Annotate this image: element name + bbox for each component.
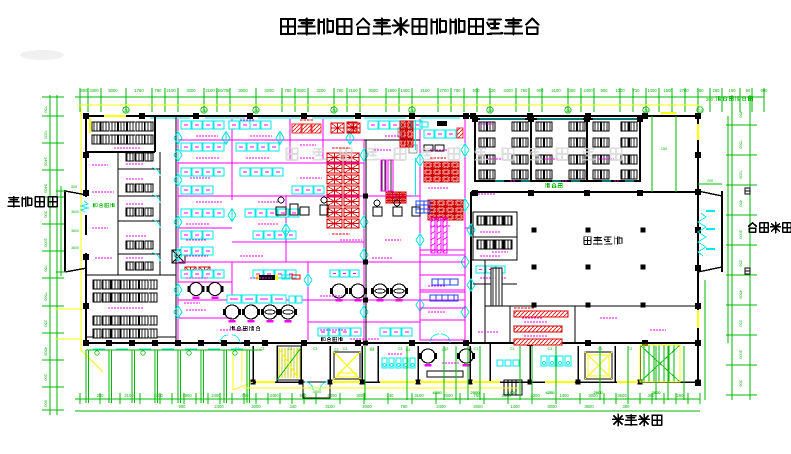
svg-text:4500: 4500: [44, 347, 49, 357]
svg-text:C5: C5: [698, 109, 703, 113]
svg-text:320: 320: [489, 88, 497, 93]
svg-text:200: 200: [706, 97, 714, 102]
svg-text:900: 900: [761, 88, 769, 93]
svg-text:2400: 2400: [327, 393, 337, 398]
svg-text:450: 450: [739, 111, 744, 118]
svg-text:C5: C5: [566, 109, 571, 113]
svg-text:C3: C3: [474, 347, 479, 351]
svg-text:C3: C3: [548, 347, 553, 351]
svg-text:250: 250: [739, 260, 744, 267]
svg-text:C5: C5: [254, 109, 259, 113]
svg-text:2700: 2700: [679, 88, 689, 93]
svg-text:90: 90: [746, 88, 751, 93]
svg-text:380: 380: [623, 404, 631, 409]
svg-text:850: 850: [81, 88, 89, 93]
svg-text:3600: 3600: [71, 229, 79, 233]
svg-text:1400: 1400: [400, 88, 410, 93]
svg-text:760: 760: [337, 88, 345, 93]
svg-text:2100: 2100: [124, 393, 134, 398]
svg-text:2600: 2600: [594, 390, 604, 395]
svg-text:2700: 2700: [439, 88, 449, 93]
svg-text:4500: 4500: [313, 390, 321, 394]
svg-text:250: 250: [739, 320, 744, 327]
svg-text:3400: 3400: [503, 88, 513, 93]
svg-text:900: 900: [537, 88, 545, 93]
svg-text:2400: 2400: [436, 404, 446, 409]
svg-text:3600: 3600: [71, 210, 79, 214]
svg-text:1760: 1760: [134, 88, 144, 93]
svg-text:900: 900: [179, 404, 187, 409]
svg-text:7200: 7200: [739, 170, 744, 180]
svg-text:2100: 2100: [166, 88, 176, 93]
svg-text:4200: 4200: [546, 390, 556, 395]
svg-text:750: 750: [44, 265, 49, 272]
svg-text:3100: 3100: [414, 393, 424, 398]
svg-text:C3: C3: [288, 347, 293, 351]
svg-text:1000: 1000: [615, 88, 625, 93]
svg-text:900: 900: [601, 88, 609, 93]
svg-text:760/760: 760/760: [215, 88, 231, 93]
svg-text:5400: 5400: [44, 184, 49, 194]
svg-text:900: 900: [44, 400, 49, 407]
svg-text:1400: 1400: [647, 88, 657, 93]
svg-text:3000: 3000: [238, 88, 248, 93]
svg-text:3000: 3000: [186, 88, 196, 93]
svg-text:200: 200: [707, 179, 713, 183]
svg-text:3600: 3600: [617, 393, 627, 398]
svg-text:C3: C3: [343, 347, 348, 351]
svg-text:4500: 4500: [433, 390, 443, 395]
svg-text:760: 760: [242, 393, 250, 398]
svg-text:1000: 1000: [44, 238, 49, 248]
svg-text:760: 760: [285, 88, 293, 93]
svg-text:3000: 3000: [739, 350, 744, 360]
svg-text:150: 150: [661, 147, 667, 151]
svg-text:2100: 2100: [420, 88, 430, 93]
svg-text:150: 150: [44, 320, 49, 327]
svg-text:2000: 2000: [443, 393, 453, 398]
svg-text:1400: 1400: [510, 404, 520, 409]
svg-text:3400: 3400: [269, 393, 279, 398]
svg-text:360: 360: [697, 88, 705, 93]
svg-text:2400: 2400: [214, 404, 224, 409]
svg-text:7500: 7500: [739, 140, 744, 150]
svg-text:3300: 3300: [89, 88, 99, 93]
svg-text:3000: 3000: [251, 404, 261, 409]
svg-text:710: 710: [633, 88, 641, 93]
svg-text:1800: 1800: [663, 88, 673, 93]
svg-text:750: 750: [44, 106, 49, 113]
svg-text:750: 750: [521, 88, 529, 93]
svg-text:C3: C3: [510, 347, 515, 351]
svg-text:3000: 3000: [739, 230, 744, 240]
svg-text:760: 760: [155, 88, 163, 93]
svg-text:200: 200: [44, 211, 49, 218]
svg-text:3000: 3000: [296, 88, 306, 93]
svg-text:1400: 1400: [559, 393, 569, 398]
svg-text:2000: 2000: [473, 404, 483, 409]
svg-text:260: 260: [713, 88, 721, 93]
svg-text:340: 340: [387, 393, 395, 398]
svg-text:C5: C5: [332, 109, 337, 113]
svg-text:1500: 1500: [508, 390, 518, 395]
svg-text:1900: 1900: [387, 88, 397, 93]
svg-text:3200: 3200: [316, 88, 326, 93]
svg-text:3000: 3000: [547, 404, 557, 409]
svg-text:1900: 1900: [182, 393, 192, 398]
svg-text:300: 300: [71, 185, 77, 189]
svg-text:C3: C3: [406, 348, 411, 352]
svg-text:C5: C5: [124, 109, 129, 113]
svg-text:2400: 2400: [211, 393, 221, 398]
svg-text:7200: 7200: [44, 130, 49, 140]
svg-text:3600: 3600: [652, 390, 662, 395]
svg-text:450: 450: [739, 200, 744, 207]
svg-text:C5: C5: [488, 109, 493, 113]
svg-text:3000: 3000: [368, 88, 378, 93]
svg-text:2100: 2100: [348, 88, 358, 93]
svg-text:260: 260: [677, 393, 685, 398]
svg-text:340: 340: [290, 404, 298, 409]
svg-text:4500: 4500: [739, 290, 744, 300]
svg-text:C3: C3: [398, 347, 403, 351]
svg-text:350: 350: [569, 88, 577, 93]
svg-text:3100: 3100: [325, 404, 335, 409]
svg-text:3200: 3200: [264, 88, 274, 93]
svg-text:2000: 2000: [471, 390, 481, 395]
svg-text:C5: C5: [644, 109, 649, 113]
svg-text:5000: 5000: [108, 88, 118, 93]
svg-text:2400: 2400: [583, 88, 593, 93]
svg-text:2000: 2000: [362, 404, 372, 409]
svg-text:C3: C3: [370, 347, 375, 351]
svg-text:200: 200: [44, 374, 49, 381]
svg-text:C3: C3: [313, 347, 318, 351]
svg-text:2100: 2100: [551, 88, 561, 93]
svg-text:760: 760: [454, 88, 462, 93]
svg-text:1400: 1400: [44, 157, 49, 167]
svg-text:3600: 3600: [584, 404, 594, 409]
svg-text:150: 150: [729, 88, 737, 93]
svg-text:760: 760: [401, 404, 409, 409]
svg-text:300: 300: [739, 380, 744, 387]
svg-text:C5: C5: [410, 109, 415, 113]
svg-text:2100: 2100: [205, 88, 215, 93]
svg-text:900: 900: [473, 88, 481, 93]
svg-text:250: 250: [97, 393, 105, 398]
svg-text:C5: C5: [202, 109, 207, 113]
svg-text:3600: 3600: [71, 246, 79, 250]
svg-text:7500: 7500: [44, 292, 49, 302]
